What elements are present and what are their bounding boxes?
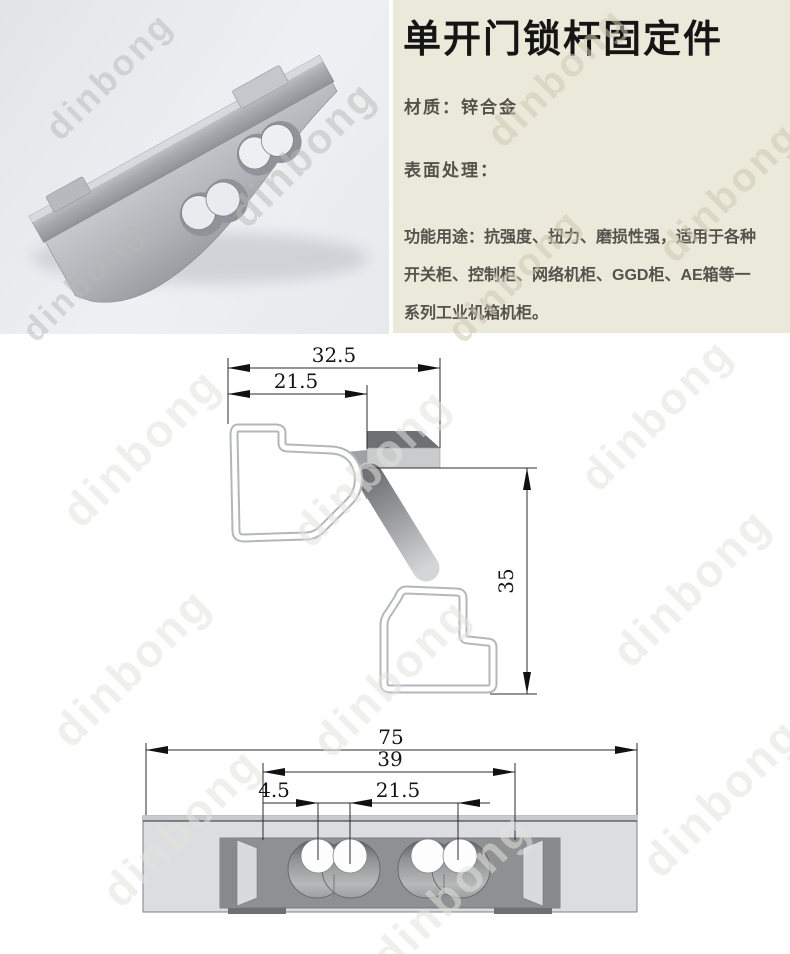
profile-diagonal-rib	[370, 477, 426, 568]
dim-front-slot-width: 4.5	[258, 778, 290, 802]
profile-upper-outline	[234, 428, 358, 538]
front-left-foot	[228, 908, 286, 914]
front-top-strip	[143, 816, 637, 821]
dim-profile-inner-width: 21.5	[274, 369, 319, 393]
profile-flange-bevel	[367, 431, 440, 448]
dim-front-mount-span: 39	[377, 747, 402, 771]
dim-profile-outer-width: 32.5	[312, 343, 357, 367]
front-right-foot	[494, 908, 552, 914]
front-keyhole-right	[398, 839, 490, 898]
front-center-panel	[220, 838, 560, 908]
profile-section-drawing: 32.5 21.5 35	[228, 343, 537, 694]
profile-lower-outline	[384, 590, 493, 689]
product-page: 单开门锁杆固定件 材质：锌合金 表面处理： 功能用途：抗强度、扭力、磨损性强，适…	[0, 0, 790, 954]
front-left-tab	[220, 838, 257, 908]
technical-drawings: 32.5 21.5 35	[0, 0, 790, 954]
dim-front-total-length: 75	[378, 725, 403, 749]
front-view-drawing: 75 39 4.5 21.5	[143, 725, 637, 914]
profile-flange-body	[367, 448, 440, 468]
dim-front-hole-spacing: 21.5	[376, 778, 421, 802]
front-right-tab	[523, 838, 560, 908]
front-keyhole-left	[288, 839, 380, 898]
dim-profile-height: 35	[494, 568, 518, 593]
